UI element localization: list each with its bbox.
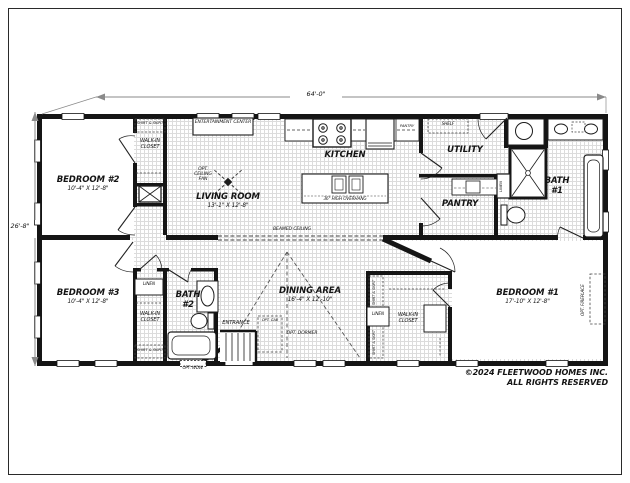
dresser xyxy=(424,305,446,332)
window xyxy=(57,361,79,367)
room-size: 16'-4" X 12'-10" xyxy=(252,297,368,303)
floor-plan-page: 64'-0" 26'-8" BEDROOM #2 10'-4" X 12'-8"… xyxy=(0,0,630,483)
room-label-bedroom2: BEDROOM #2 10'-4" X 12'-8" xyxy=(46,176,130,192)
room-label-bath1: BATH #1 xyxy=(536,177,578,196)
walk-in-closet-label: WALK-IN CLOSET xyxy=(389,313,427,324)
room-label-dining: DINING AREA 16'-4" X 12'-10" xyxy=(252,287,368,303)
window xyxy=(546,361,568,367)
shirt-skirt-label: SHIRT & SKIRT xyxy=(134,121,166,125)
walk-in-closet-label: WALK-IN CLOSET xyxy=(133,139,167,150)
pantry-cabinet-label: PANTRY xyxy=(394,124,420,128)
shirt-skirt-label: SHIRT & SKIRT xyxy=(372,329,376,356)
shirt-skirt-label: SHIRT & SKIRT xyxy=(372,279,376,306)
window xyxy=(456,361,478,367)
door-exterior-utility xyxy=(478,118,507,139)
room-name: BEDROOM #1 xyxy=(455,289,600,299)
room-label-bedroom3: BEDROOM #3 10'-4" X 12'-8" xyxy=(46,289,130,305)
room-name: DINING AREA xyxy=(252,287,368,297)
opt-wdw-label: OPT. WDW. xyxy=(177,366,209,370)
beamed-ceiling-line xyxy=(218,236,383,240)
dimension-width: 64'-0" xyxy=(288,91,344,98)
stove-icon xyxy=(313,119,351,147)
linen-label: LINEN xyxy=(499,177,503,196)
linen-label: LINEN xyxy=(366,312,390,317)
window xyxy=(95,361,117,367)
sink-icon xyxy=(555,124,568,134)
room-name: LIVING ROOM xyxy=(170,193,286,203)
shelf-label: SHELF xyxy=(429,122,467,127)
room-label-pantry: PANTRY xyxy=(424,200,496,210)
room-size: 17'-10" X 12'-8" xyxy=(455,299,600,305)
room-number: #2 xyxy=(167,301,209,311)
room-size: 10'-4" X 12'-8" xyxy=(46,299,130,305)
sink-icon xyxy=(585,124,598,134)
entertainment-center-label: ENTERTAINMENT CENTER xyxy=(194,120,252,125)
door-opening xyxy=(480,114,508,120)
door-bedroom3-closet xyxy=(139,255,162,270)
toilet-icon xyxy=(501,205,525,225)
stairs-icon xyxy=(220,331,256,362)
copyright-line1: ©2024 FLEETWOOD HOMES INC. xyxy=(400,368,608,378)
floor-plan-drawing xyxy=(0,0,630,483)
opt-cab-label: OPT. CAB xyxy=(256,318,284,322)
overhang-label: 36" HIGH OVERHANG xyxy=(305,197,385,202)
entrance-label: ENTRANCE xyxy=(214,321,258,327)
room-size: 10'-4" X 12'-8" xyxy=(46,186,130,192)
door-bath2 xyxy=(169,270,191,282)
dimension-height: 26'-8" xyxy=(5,223,35,230)
linen-label: LINEN xyxy=(134,282,164,287)
sink-icon xyxy=(516,123,533,140)
window xyxy=(397,361,419,367)
window xyxy=(258,114,280,120)
beamed-ceiling-label: BEAMED CEILING xyxy=(262,227,322,232)
window xyxy=(62,114,84,120)
room-number: #1 xyxy=(536,187,578,197)
room-label-bedroom1: BEDROOM #1 17'-10" X 12'-8" xyxy=(455,289,600,305)
door-bath1 xyxy=(557,227,583,238)
opt-dormer-label: OPT. DORMER xyxy=(283,331,321,336)
room-name: BEDROOM #3 xyxy=(46,289,130,299)
opt-ceiling-fan-label: OPT. CEILING FAN xyxy=(190,167,216,182)
shirt-skirt-label: SHIRT & SKIRT xyxy=(134,348,166,352)
copyright: ©2024 FLEETWOOD HOMES INC. ALL RIGHTS RE… xyxy=(400,368,608,388)
window xyxy=(323,361,345,367)
room-label-bath2: BATH #2 xyxy=(167,291,209,310)
tub-icon xyxy=(584,155,603,237)
room-label-living: LIVING ROOM 13'-1" X 12'-8" xyxy=(170,193,286,209)
walk-in-closet-label: WALK-IN CLOSET xyxy=(133,312,167,323)
room-label-kitchen: KITCHEN xyxy=(302,151,388,161)
copyright-line2: ALL RIGHTS RESERVED xyxy=(400,378,608,388)
toilet-icon xyxy=(191,313,214,329)
door-bedroom1-closet xyxy=(433,283,450,307)
room-name: BEDROOM #2 xyxy=(46,176,130,186)
window xyxy=(294,361,316,367)
room-label-utility: UTILITY xyxy=(431,146,499,156)
opt-fireplace-label: OPT. FIREPLACE xyxy=(581,276,586,324)
fridge-icon xyxy=(366,119,394,149)
room-size: 13'-1" X 12'-8" xyxy=(170,203,286,209)
